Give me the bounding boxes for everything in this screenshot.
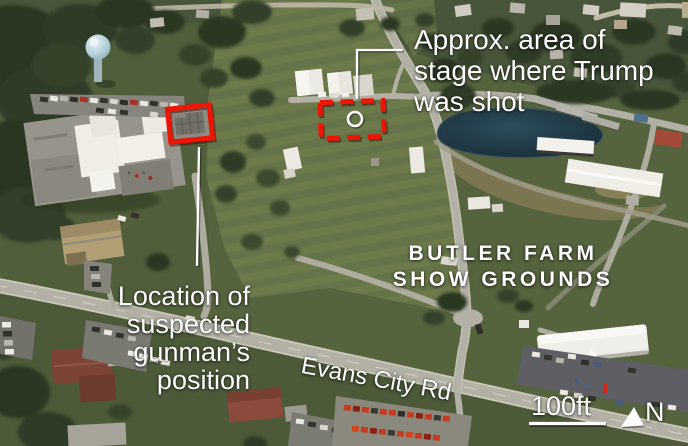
compass-label: N [645,397,665,428]
scale-bar-label: 100ft [531,391,591,422]
venue-name-label: BUTLER FARM SHOW GROUNDS [352,241,654,293]
news-map-graphic: Approx. area of stage where Trump was sh… [0,0,688,446]
stage-annotation-label: Approx. area of stage where Trump was sh… [414,24,654,117]
gunman-annotation-label: Location of suspected gunman’s position [118,282,250,394]
building-bottom-left [67,422,126,446]
